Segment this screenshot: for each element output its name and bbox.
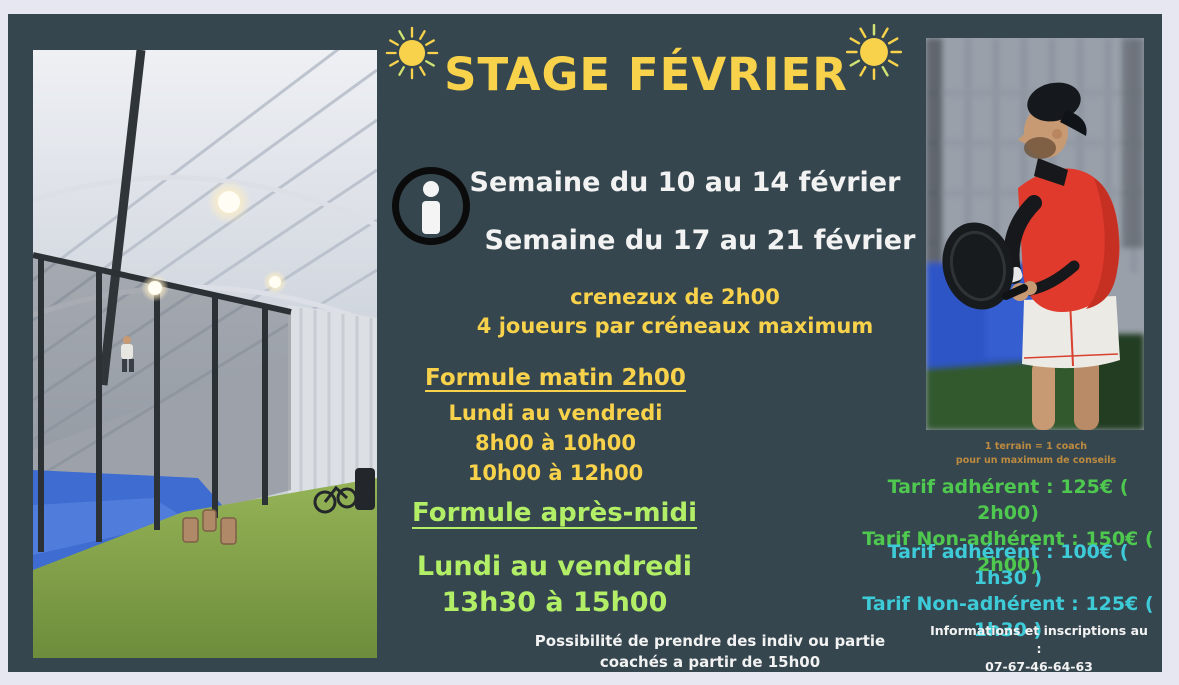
coach-note: 1 terrain = 1 coach pour un maximum de c… bbox=[926, 440, 1146, 468]
contact-label: Informations et inscriptions au : bbox=[928, 622, 1150, 658]
contact-info: Informations et inscriptions au : 07-67-… bbox=[928, 622, 1150, 676]
tarif-adherent-1h30: Tarif adhérent : 100€ ( 1h30 ) bbox=[858, 539, 1158, 591]
info-icon-stem bbox=[422, 201, 440, 234]
formule-matin-title: Formule matin 2h00 bbox=[418, 365, 693, 391]
formule-apres-midi-title: Formule après-midi bbox=[412, 498, 697, 528]
formule-matin-days: Lundi au vendredi bbox=[418, 398, 693, 428]
coach-note-line-1: 1 terrain = 1 coach bbox=[926, 440, 1146, 454]
info-icon bbox=[392, 167, 470, 245]
formule-apres-midi-slot: 13h30 à 15h00 bbox=[412, 585, 697, 621]
week-line-2: Semaine du 17 au 21 février bbox=[480, 225, 920, 256]
flyer: STAGE FÉVRIER Semaine du 10 au 14 févrie… bbox=[0, 0, 1179, 685]
coach-note-line-2: pour un maximum de conseils bbox=[926, 454, 1146, 468]
slot-info-line-1: crenezux de 2h00 bbox=[420, 283, 930, 312]
info-icon-dot bbox=[423, 181, 439, 197]
formule-matin-slot-1: 8h00 à 10h00 bbox=[418, 428, 693, 458]
slot-info-line-2: 4 joueurs par créneaux maximum bbox=[420, 312, 930, 341]
slot-info: crenezux de 2h00 4 joueurs par créneaux … bbox=[420, 283, 930, 341]
contact-phone: 07-67-46-64-63 bbox=[928, 658, 1150, 676]
page-title: STAGE FÉVRIER bbox=[430, 50, 862, 100]
tarif-adherent-2h00: Tarif adhérent : 125€ ( 2h00) bbox=[858, 474, 1158, 526]
bottom-note-line-2: coachés a partir de 15h00 bbox=[460, 652, 960, 673]
week-line-1: Semaine du 10 au 14 février bbox=[465, 167, 905, 198]
padel-player-photo bbox=[926, 38, 1144, 430]
padel-hall-photo bbox=[33, 50, 377, 658]
formule-apres-midi-block: Formule après-midi Lundi au vendredi 13h… bbox=[412, 498, 697, 621]
formule-matin-block: Formule matin 2h00 Lundi au vendredi 8h0… bbox=[418, 365, 693, 488]
formule-matin-slot-2: 10h00 à 12h00 bbox=[418, 458, 693, 488]
formule-apres-midi-days: Lundi au vendredi bbox=[412, 549, 697, 585]
